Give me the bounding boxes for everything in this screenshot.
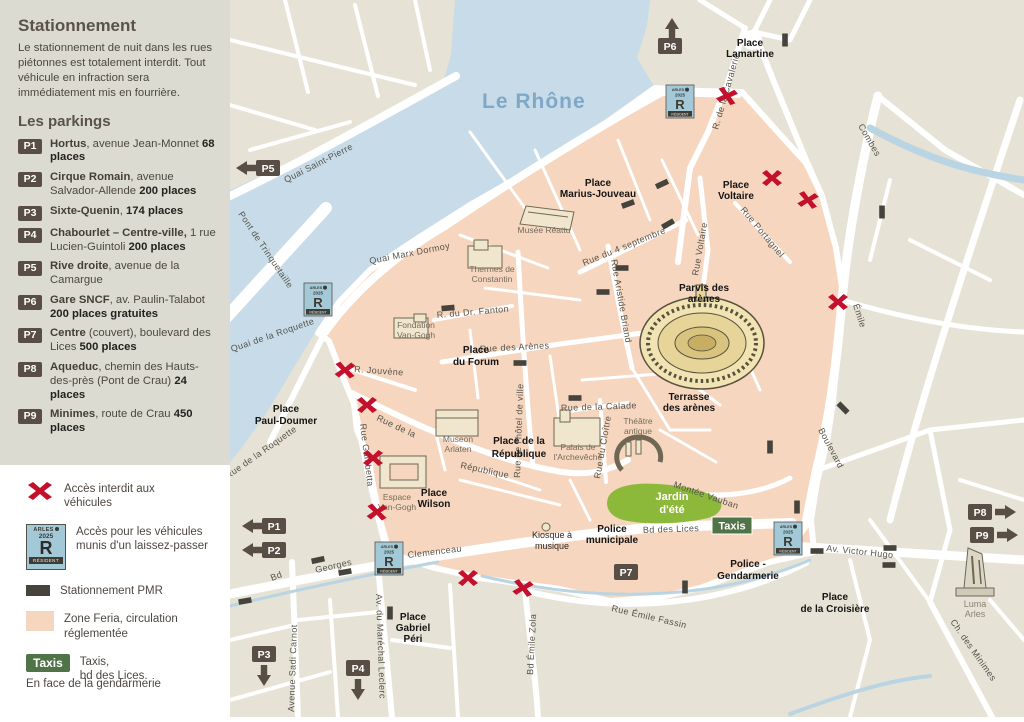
place-label: Parvis des — [679, 283, 729, 294]
landmark-label: antique — [624, 426, 652, 436]
place-label: municipale — [586, 535, 639, 546]
svg-text:R: R — [675, 97, 685, 112]
parking-badge-p8: P8 — [18, 362, 42, 377]
landmark-label: Arlaten — [445, 444, 472, 454]
parking-places: 200 places gratuites — [50, 308, 158, 320]
place-label: Place — [822, 592, 849, 603]
parking-item-p5: P5 Rive droite, avenue de la Camargue — [18, 260, 218, 288]
parking-places: 174 places — [126, 205, 183, 217]
badge-resident-label: RÉSIDENT — [29, 557, 63, 564]
resident-badge: ARLES 2025 R RÉSIDENT — [666, 85, 694, 118]
place-label: Gabriel — [396, 623, 431, 634]
place-label: de la Croisière — [801, 604, 870, 615]
svg-text:RÉSIDENT: RÉSIDENT — [779, 548, 796, 553]
place-label: Place — [737, 38, 764, 49]
svg-text:P4: P4 — [352, 663, 365, 675]
legend-pmr-label: Stationnement PMR — [60, 583, 163, 598]
place-label: Marius-Jouveau — [560, 189, 636, 200]
legend-taxis-line3: En face de la gendarmerie — [26, 678, 222, 690]
parking-badge-p5: P5 — [18, 261, 42, 276]
svg-text:P3: P3 — [258, 649, 271, 661]
parking-item-p1: P1 Hortus, avenue Jean-Monnet 68 places — [18, 138, 218, 166]
place-label: Place — [273, 404, 300, 415]
place-label: Kiosque à — [532, 530, 572, 540]
place-label: Péri — [404, 634, 423, 645]
parking-places: 200 places — [129, 241, 186, 253]
intro-text: Le stationnement de nuit dans les rues p… — [18, 41, 214, 101]
parking-name: Sixte-Quenin — [50, 205, 120, 217]
legend-feria: Zone Feria, circulation réglementée — [26, 611, 222, 641]
sidebar: Stationnement Le stationnement de nuit d… — [0, 0, 230, 465]
museon-arlaten-icon — [436, 410, 478, 436]
legend-no-access: Accès interdit aux véhicules — [26, 481, 222, 511]
taxis-map-badge: Taxis — [712, 517, 752, 534]
landmark-label: Constantin — [472, 274, 513, 284]
poster: Stationnement Le stationnement de nuit d… — [0, 0, 1024, 717]
legend-taxis-line1: Taxis, — [80, 655, 148, 669]
place-label: Police — [597, 524, 627, 535]
landmark-label: Van-Gogh — [397, 330, 435, 340]
parking-badge-p7: P7 — [18, 328, 42, 343]
place-label: Place — [400, 612, 427, 623]
parking-item-p8: P8 Aqueduc, chemin des Hauts-des-près (P… — [18, 361, 218, 402]
place-label: Jardin — [655, 491, 688, 503]
parking-name: Hortus — [50, 138, 86, 150]
place-label: République — [492, 449, 547, 460]
svg-text:R: R — [384, 554, 394, 569]
parking-name: Aqueduc — [50, 361, 98, 373]
svg-text:RÉSIDENT: RÉSIDENT — [309, 309, 326, 314]
resident-badge: ARLES 2025 R RÉSIDENT — [304, 283, 332, 316]
place-label: Place — [585, 178, 612, 189]
city-map: Le Rhône — [230, 0, 1024, 717]
parking-name: Cirque Romain — [50, 171, 130, 183]
svg-text:RÉSIDENT: RÉSIDENT — [671, 111, 688, 116]
taxis-badge-icon: Taxis — [26, 654, 70, 672]
parking-badge-p2: P2 — [18, 172, 42, 187]
legend-feria-label: Zone Feria, circulation réglementée — [64, 611, 194, 641]
place-label: Lamartine — [726, 49, 774, 60]
parking-badge-p9: P9 — [18, 409, 42, 424]
landmark-label: Museon — [443, 434, 474, 444]
resident-badge: ARLES 2025 R RÉSIDENT — [774, 522, 802, 555]
place-label: Police - — [730, 559, 766, 570]
place-label: musique — [535, 541, 569, 551]
espace-vangogh-icon — [380, 456, 426, 488]
legend: Accès interdit aux véhicules ARLES 2025 … — [0, 465, 230, 717]
svg-text:ARLES: ARLES — [780, 525, 793, 529]
place-label: Place de la — [493, 436, 545, 447]
parking-item-p2: P2 Cirque Romain, avenue Salvador-Allend… — [18, 171, 218, 199]
parking-item-p6: P6 Gare SNCF, av. Paulin-Talabot 200 pla… — [18, 294, 218, 322]
parking-item-p9: P9 Minimes, route de Crau 450 places — [18, 408, 218, 436]
svg-text:P5: P5 — [262, 163, 275, 175]
landmark-label: Musée Réattu — [518, 225, 571, 235]
parking-badge-p6: P6 — [18, 295, 42, 310]
parking-places: 200 places — [139, 185, 196, 197]
resident-badge-icon: ARLES 2025 R RÉSIDENT — [26, 524, 66, 570]
landmark-label: Espace — [383, 492, 412, 502]
legend-no-access-label: Accès interdit aux véhicules — [64, 481, 184, 511]
parking-badge-p4: P4 — [18, 228, 42, 243]
place-label: Place — [421, 488, 448, 499]
street-label: Bd des Lices — [643, 523, 700, 535]
parking-name: Gare SNCF — [50, 294, 110, 306]
legend-pmr: Stationnement PMR — [26, 583, 222, 598]
place-label: des arènes — [663, 403, 716, 414]
parking-name: Chabourlet – Centre-ville, — [50, 227, 187, 239]
landmark-label: Fondation — [397, 320, 435, 330]
svg-text:ARLES: ARLES — [310, 286, 323, 290]
parking-marker-p7: P7 — [614, 564, 638, 580]
river-label: Le Rhône — [482, 90, 586, 113]
parking-item-p3: P3 Sixte-Quenin, 174 places — [18, 205, 218, 221]
place-label: Wilson — [418, 499, 451, 510]
place-label: Gendarmerie — [717, 571, 779, 582]
place-label: arènes — [688, 294, 721, 305]
svg-text:P8: P8 — [974, 507, 987, 519]
feria-swatch-icon — [26, 611, 54, 631]
parking-desc: , av. Paulin-Talabot — [110, 294, 205, 306]
parking-name: Rive droite — [50, 260, 108, 272]
page-title: Stationnement — [18, 16, 218, 36]
place-label: Terrasse — [669, 392, 710, 403]
svg-text:P7: P7 — [620, 567, 633, 579]
landmark-label: Thermes de — [469, 264, 515, 274]
landmark-label: Théâtre — [623, 416, 653, 426]
svg-text:RÉSIDENT: RÉSIDENT — [380, 568, 397, 573]
place-label: Place — [723, 180, 750, 191]
landmark-label: l'Archevêché — [554, 452, 603, 462]
place-label: Place — [463, 345, 490, 356]
place-label: Voltaire — [718, 191, 754, 202]
resident-badge: ARLES 2025 R RÉSIDENT — [375, 542, 403, 575]
place-label: Arles — [965, 609, 986, 619]
parking-badge-p1: P1 — [18, 139, 42, 154]
legend-resident: ARLES 2025 R RÉSIDENT Accès pour les véh… — [26, 524, 222, 570]
svg-text:ARLES: ARLES — [381, 545, 394, 549]
badge-r-label: R — [40, 540, 53, 557]
svg-text:R: R — [313, 295, 323, 310]
place-label: d'été — [659, 504, 684, 516]
legend-resident-label: Accès pour les véhicules munis d'un lais… — [76, 524, 211, 554]
parkings-title: Les parkings — [18, 113, 218, 130]
landmark-label: Palais de — [561, 442, 596, 452]
parking-desc: , avenue Jean-Monnet — [86, 138, 202, 150]
parking-item-p4: P4 Chabourlet – Centre-ville, 1 rue Luci… — [18, 227, 218, 255]
parking-item-p7: P7 Centre (couvert), boulevard des Lices… — [18, 327, 218, 355]
parking-badge-p3: P3 — [18, 206, 42, 221]
place-label: du Forum — [453, 357, 499, 368]
parking-desc: , route de Crau — [95, 408, 174, 420]
svg-text:Taxis: Taxis — [718, 521, 745, 533]
svg-text:P9: P9 — [976, 530, 989, 542]
parking-name: Minimes — [50, 408, 95, 420]
svg-text:P1: P1 — [268, 521, 281, 533]
svg-text:ARLES: ARLES — [672, 88, 685, 92]
place-label: Luma — [964, 599, 987, 609]
svg-text:P2: P2 — [268, 545, 281, 557]
svg-text:P6: P6 — [664, 41, 677, 53]
pmr-swatch-icon — [26, 585, 50, 596]
no-access-x-icon — [26, 481, 54, 501]
parking-places: 500 places — [80, 341, 137, 353]
svg-text:R: R — [783, 534, 793, 549]
map-area: Le Rhône — [230, 0, 1024, 717]
place-label: Paul-Doumer — [255, 416, 317, 427]
parking-name: Centre — [50, 327, 86, 339]
